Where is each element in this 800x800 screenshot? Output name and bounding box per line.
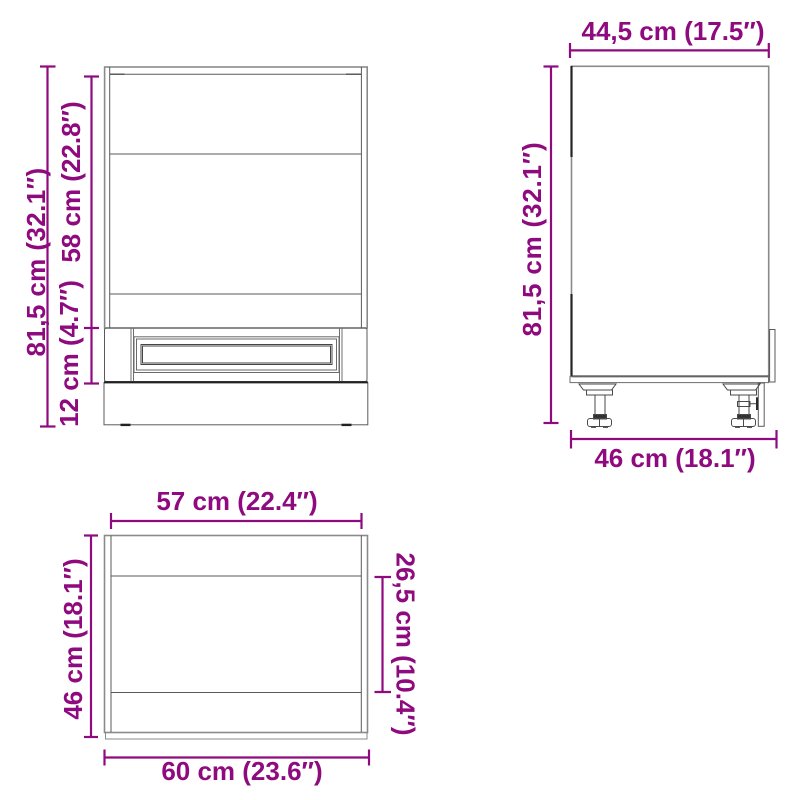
svg-text:44,5 cm (17.5″): 44,5 cm (17.5″) [581, 16, 764, 46]
svg-text:46 cm (18.1″): 46 cm (18.1″) [594, 443, 755, 473]
svg-text:57 cm (22.4″): 57 cm (22.4″) [156, 486, 317, 516]
svg-text:46 cm (18.1″): 46 cm (18.1″) [58, 558, 88, 719]
svg-text:58 cm (22.8″): 58 cm (22.8″) [56, 101, 86, 262]
svg-text:81,5 cm (32.1″): 81,5 cm (32.1″) [21, 167, 51, 356]
svg-text:81,5 cm (32.1″): 81,5 cm (32.1″) [517, 141, 547, 336]
svg-text:60 cm (23.6″): 60 cm (23.6″) [161, 756, 322, 786]
svg-text:26,5 cm (10.4″): 26,5 cm (10.4″) [391, 552, 421, 735]
svg-text:12 cm (4.7″): 12 cm (4.7″) [54, 280, 84, 427]
